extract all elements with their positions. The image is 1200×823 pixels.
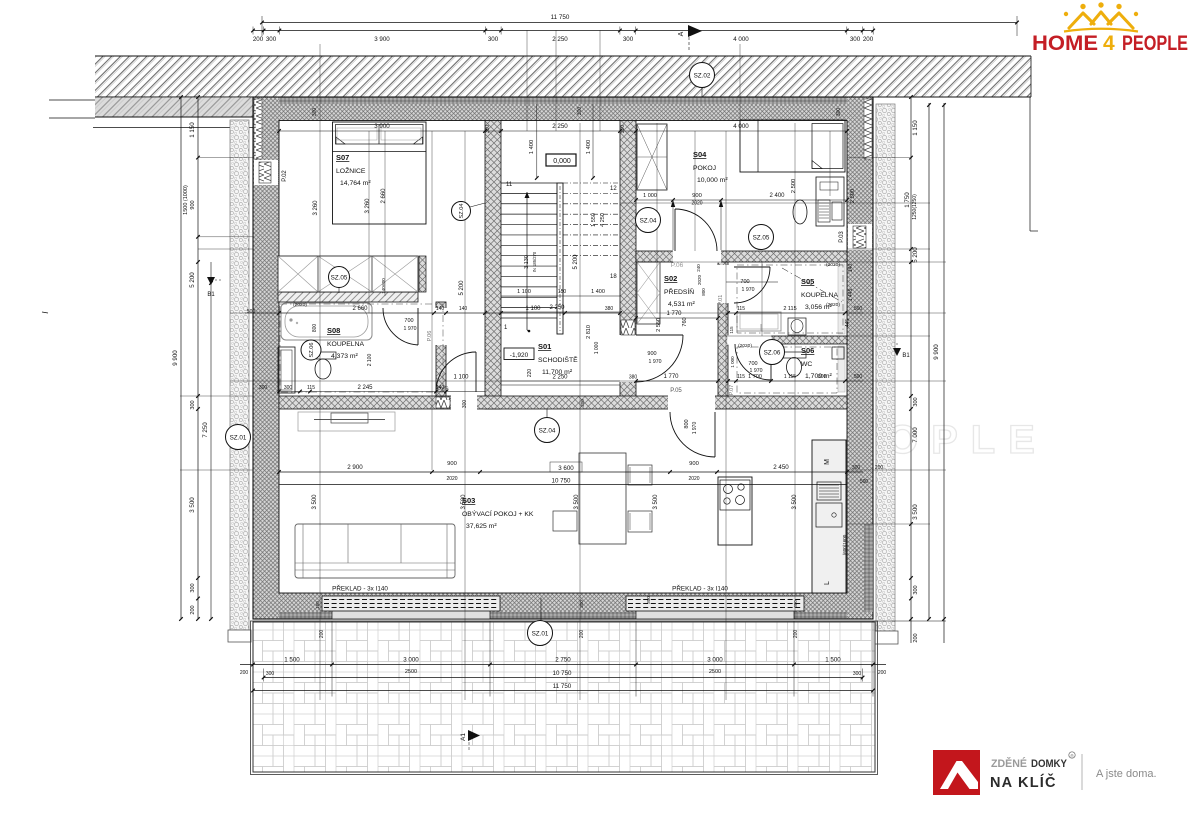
svg-text:200: 200	[253, 36, 264, 43]
svg-text:3 000: 3 000	[403, 657, 419, 664]
svg-text:900: 900	[647, 351, 656, 357]
svg-text:900: 900	[689, 461, 699, 467]
svg-text:500: 500	[854, 374, 863, 380]
svg-text:B1: B1	[207, 292, 215, 298]
svg-text:SZ.04: SZ.04	[539, 427, 556, 434]
svg-text:A jste doma.: A jste doma.	[1096, 768, 1157, 780]
svg-text:1 100: 1 100	[525, 306, 541, 312]
svg-text:115: 115	[729, 326, 734, 334]
svg-text:3 900: 3 900	[374, 36, 390, 43]
svg-text:180: 180	[315, 601, 320, 609]
svg-text:500: 500	[247, 309, 256, 315]
svg-text:300: 300	[913, 397, 919, 406]
svg-text:4: 4	[1103, 32, 1115, 55]
svg-text:500: 500	[854, 306, 863, 312]
svg-text:S05: S05	[801, 277, 814, 286]
svg-text:1 500: 1 500	[284, 657, 300, 664]
svg-text:5 200: 5 200	[573, 254, 579, 270]
svg-text:S02: S02	[664, 274, 677, 283]
svg-text:ZDĚNÉ: ZDĚNÉ	[991, 757, 1027, 770]
svg-text:3 500: 3 500	[574, 494, 580, 510]
svg-text:WC: WC	[801, 361, 812, 368]
svg-text:2020: 2020	[446, 476, 457, 482]
svg-text:14,764 m²: 14,764 m²	[340, 180, 371, 187]
svg-text:220: 220	[527, 369, 533, 378]
svg-text:(2020): (2020)	[293, 302, 307, 308]
svg-text:1 750: 1 750	[904, 192, 911, 208]
svg-text:900: 900	[447, 461, 457, 467]
svg-text:300: 300	[793, 600, 798, 608]
svg-text:300: 300	[623, 36, 634, 43]
svg-text:PŘEDSÍŇ: PŘEDSÍŇ	[664, 287, 694, 296]
svg-text:SZ.06: SZ.06	[309, 343, 315, 358]
svg-text:P.05: P.05	[670, 388, 682, 394]
svg-text:S01: S01	[538, 342, 551, 351]
svg-text:300: 300	[488, 36, 499, 43]
svg-text:S07: S07	[336, 153, 349, 162]
svg-text:11: 11	[506, 182, 513, 188]
svg-text:SZ.02: SZ.02	[694, 72, 711, 79]
svg-text:300: 300	[190, 583, 196, 592]
svg-text:2 250: 2 250	[549, 305, 565, 311]
svg-text:P.03: P.03	[839, 231, 845, 243]
svg-text:4 000: 4 000	[733, 123, 749, 130]
svg-text:200: 200	[580, 399, 585, 407]
svg-text:4 250: 4 250	[600, 213, 606, 227]
svg-text:1 550: 1 550	[591, 213, 597, 227]
svg-text:2 500: 2 500	[850, 189, 856, 204]
svg-text:800: 800	[312, 324, 318, 333]
svg-text:S08: S08	[327, 326, 340, 335]
svg-text:M: M	[824, 459, 831, 465]
svg-text:2020: 2020	[697, 274, 702, 285]
svg-text:9 900: 9 900	[933, 344, 940, 360]
svg-text:9 900: 9 900	[172, 350, 179, 366]
svg-text:500: 500	[860, 479, 869, 485]
svg-text:2 810: 2 810	[586, 325, 592, 339]
svg-text:(600)1600: (600)1600	[842, 534, 847, 555]
svg-text:1250(1250): 1250(1250)	[912, 194, 918, 220]
svg-text:A1: A1	[460, 733, 467, 741]
svg-text:150: 150	[558, 289, 567, 295]
svg-text:SZ.04: SZ.04	[459, 204, 465, 219]
svg-text:200: 200	[878, 670, 887, 676]
svg-text:3 500: 3 500	[653, 494, 659, 510]
svg-text:300: 300	[577, 107, 583, 116]
svg-text:3 900: 3 900	[374, 123, 390, 130]
svg-text:300: 300	[646, 596, 651, 604]
svg-text:SZ.05: SZ.05	[753, 234, 770, 241]
svg-text:200: 200	[793, 630, 799, 639]
svg-text:2 500: 2 500	[791, 179, 797, 194]
svg-text:3 260: 3 260	[313, 200, 319, 216]
svg-text:P.02: P.02	[282, 170, 288, 182]
svg-text:A: A	[678, 31, 685, 36]
svg-text:10,000 m²: 10,000 m²	[697, 177, 728, 184]
svg-text:1 970: 1 970	[742, 287, 755, 293]
svg-text:1 100: 1 100	[517, 289, 531, 295]
svg-text:POKOJ: POKOJ	[693, 165, 716, 172]
svg-text:3 260: 3 260	[365, 198, 371, 214]
svg-text:P.07: P.07	[729, 385, 735, 396]
svg-text:P.01: P.01	[718, 295, 724, 306]
svg-text:KOUPELNA: KOUPELNA	[327, 341, 364, 348]
svg-text:300: 300	[818, 374, 827, 380]
svg-text:200: 200	[240, 670, 249, 676]
svg-text:2 660: 2 660	[352, 306, 368, 312]
svg-text:1 000: 1 000	[730, 356, 735, 368]
svg-text:115: 115	[737, 306, 745, 312]
svg-text:2500: 2500	[405, 669, 417, 675]
svg-text:2 250: 2 250	[552, 375, 568, 381]
svg-text:12: 12	[610, 186, 617, 192]
svg-text:SCHODIŠTĚ: SCHODIŠTĚ	[538, 355, 578, 364]
svg-text:200: 200	[190, 605, 196, 614]
svg-text:300: 300	[312, 108, 318, 117]
svg-text:2 900: 2 900	[347, 464, 363, 471]
svg-text:3 500: 3 500	[312, 494, 318, 510]
svg-text:S06: S06	[801, 346, 814, 355]
svg-text:900: 900	[692, 193, 702, 199]
svg-text:18: 18	[610, 274, 617, 280]
svg-text:140: 140	[848, 264, 854, 273]
svg-text:1 700: 1 700	[748, 374, 762, 380]
svg-text:1 100: 1 100	[453, 375, 469, 381]
svg-text:7 250: 7 250	[202, 422, 209, 438]
svg-text:(2020): (2020)	[738, 343, 752, 349]
svg-text:10 750: 10 750	[552, 477, 571, 484]
svg-text:2 250: 2 250	[552, 123, 568, 130]
svg-text:(2020): (2020)	[826, 302, 840, 308]
svg-text:(2020): (2020)	[826, 262, 840, 268]
svg-text:1 150: 1 150	[189, 122, 196, 138]
svg-text:300: 300	[853, 671, 862, 677]
svg-text:2 660: 2 660	[381, 188, 387, 204]
svg-text:2500: 2500	[709, 669, 721, 675]
svg-text:1 400: 1 400	[529, 140, 535, 155]
svg-text:1 400: 1 400	[586, 140, 592, 155]
svg-text:1 000: 1 000	[643, 193, 657, 199]
svg-text:300: 300	[190, 400, 196, 409]
svg-text:700: 700	[748, 361, 757, 367]
svg-text:0,000: 0,000	[553, 158, 571, 165]
svg-text:2 100: 2 100	[367, 354, 373, 367]
svg-text:800: 800	[684, 419, 690, 428]
svg-text:2 250: 2 250	[552, 36, 568, 43]
svg-text:2 400: 2 400	[769, 193, 785, 199]
svg-text:300: 300	[485, 125, 491, 134]
svg-text:1 150: 1 150	[912, 120, 919, 136]
svg-text:300: 300	[913, 585, 919, 594]
svg-text:115: 115	[737, 374, 745, 380]
svg-text:5 200: 5 200	[189, 272, 196, 288]
svg-text:380: 380	[629, 375, 638, 381]
svg-text:5 200: 5 200	[459, 280, 465, 296]
svg-text:3 500: 3 500	[912, 504, 919, 520]
svg-text:7 000: 7 000	[912, 427, 919, 443]
svg-text:SZ.05: SZ.05	[331, 274, 348, 281]
svg-text:1 970: 1 970	[404, 326, 417, 332]
svg-text:KOUPELNA: KOUPELNA	[801, 292, 838, 299]
svg-text:2 245: 2 245	[357, 385, 373, 391]
svg-text:2 750: 2 750	[555, 657, 571, 664]
svg-text:SZ.01: SZ.01	[532, 630, 549, 637]
svg-text:300: 300	[284, 385, 293, 391]
svg-text:HOME: HOME	[1032, 32, 1098, 55]
svg-text:380: 380	[605, 306, 614, 312]
svg-text:37,625 m²: 37,625 m²	[466, 523, 497, 530]
svg-text:1 400: 1 400	[591, 289, 605, 295]
svg-text:800: 800	[701, 288, 706, 296]
svg-text:300: 300	[850, 36, 861, 43]
svg-text:1 000: 1 000	[594, 342, 600, 355]
svg-text:900: 900	[190, 200, 196, 209]
svg-text:2 560: 2 560	[656, 318, 662, 332]
svg-text:DOMKY: DOMKY	[1031, 758, 1068, 770]
svg-text:700: 700	[404, 318, 413, 324]
svg-text:300: 300	[836, 108, 842, 117]
svg-text:P.06: P.06	[671, 262, 684, 269]
svg-text:11 750: 11 750	[553, 683, 572, 690]
svg-text:NA KLÍČ: NA KLÍČ	[990, 773, 1057, 791]
svg-text:115: 115	[307, 385, 315, 391]
svg-text:1 500: 1 500	[825, 657, 841, 664]
svg-text:1 445: 1 445	[848, 289, 854, 302]
svg-text:2020: 2020	[691, 201, 702, 207]
svg-text:300: 300	[259, 385, 268, 391]
svg-text:PŘEKLAD - 3x I140: PŘEKLAD - 3x I140	[672, 584, 728, 593]
svg-text:1 115: 1 115	[784, 374, 796, 380]
svg-text:1 770: 1 770	[666, 311, 682, 317]
svg-text:200: 200	[863, 36, 874, 43]
svg-text:140: 140	[436, 385, 445, 391]
svg-text:2 450: 2 450	[773, 464, 789, 471]
svg-text:11 750: 11 750	[551, 14, 570, 21]
svg-text:SZ.06: SZ.06	[764, 349, 781, 356]
svg-text:OBÝVACÍ POKOJ + KK: OBÝVACÍ POKOJ + KK	[462, 509, 534, 518]
svg-text:4,531 m²: 4,531 m²	[668, 301, 696, 308]
svg-text:2 115: 2 115	[783, 306, 796, 312]
svg-text:300: 300	[579, 600, 584, 608]
svg-text:LOŽNICE: LOŽNICE	[336, 166, 366, 175]
svg-text:L: L	[824, 581, 831, 585]
svg-text:B1: B1	[902, 353, 910, 359]
svg-text:140: 140	[381, 286, 386, 294]
svg-text:IN 185/270: IN 185/270	[532, 251, 537, 272]
svg-text:300: 300	[620, 125, 626, 134]
svg-text:3 130: 3 130	[524, 255, 530, 269]
svg-text:3 500: 3 500	[189, 497, 196, 513]
svg-text:600: 600	[381, 278, 386, 286]
svg-text:760: 760	[682, 317, 688, 326]
svg-text:3 000: 3 000	[707, 657, 723, 664]
svg-text:SZ.01: SZ.01	[230, 434, 247, 441]
svg-text:PEOPLE: PEOPLE	[1122, 32, 1188, 55]
svg-text:10 750: 10 750	[553, 670, 572, 677]
svg-text:240: 240	[696, 264, 701, 272]
svg-text:2020: 2020	[688, 476, 699, 482]
svg-text:SZ.04: SZ.04	[640, 217, 657, 224]
svg-text:200: 200	[913, 633, 919, 642]
svg-text:445: 445	[845, 319, 851, 328]
svg-text:1500 (1000): 1500 (1000)	[183, 185, 189, 215]
svg-text:300: 300	[266, 36, 277, 43]
svg-text:140: 140	[436, 306, 445, 312]
svg-text:3 600: 3 600	[558, 465, 574, 472]
svg-text:1 970: 1 970	[692, 422, 698, 435]
svg-text:140: 140	[459, 306, 468, 312]
svg-text:-1,920: -1,920	[510, 352, 529, 359]
svg-text:1 970: 1 970	[649, 359, 662, 365]
svg-text:1 770: 1 770	[663, 374, 679, 380]
svg-text:PŘEKLAD - 3x I140: PŘEKLAD - 3x I140	[332, 584, 388, 593]
svg-text:4 000: 4 000	[733, 36, 749, 43]
svg-text:300: 300	[266, 671, 275, 677]
svg-text:3 500: 3 500	[461, 494, 467, 510]
